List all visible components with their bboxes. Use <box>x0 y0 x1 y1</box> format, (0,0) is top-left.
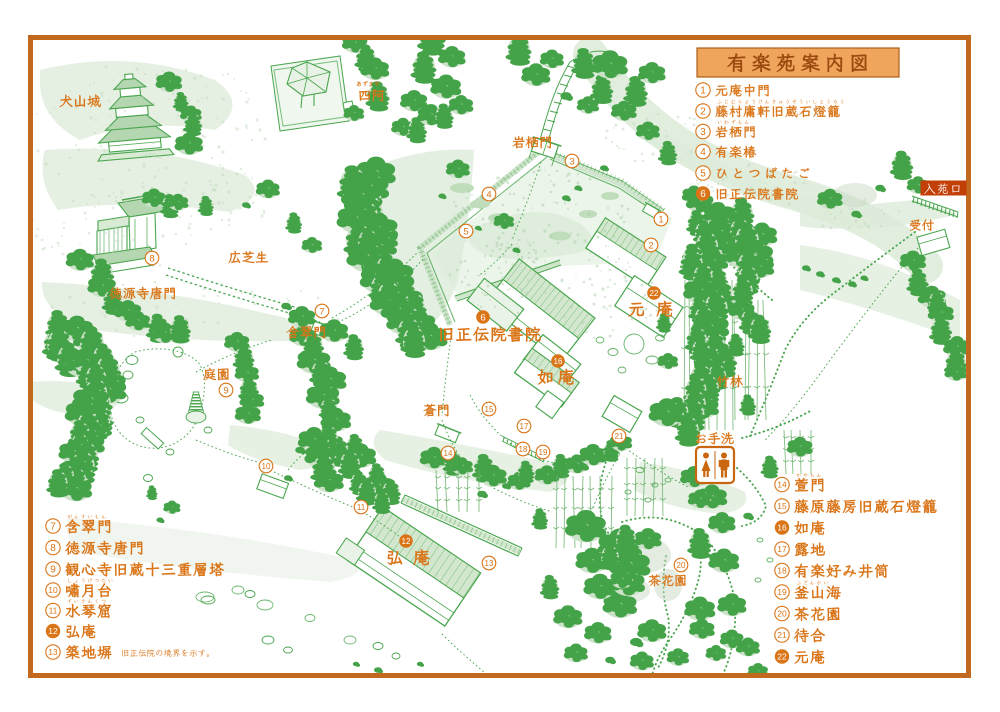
svg-text:22: 22 <box>777 652 787 662</box>
svg-text:17: 17 <box>520 422 529 431</box>
svg-text:16: 16 <box>554 357 563 366</box>
svg-text:15: 15 <box>777 501 787 511</box>
svg-text:12: 12 <box>48 626 58 636</box>
svg-text:10: 10 <box>262 462 271 471</box>
svg-text:4: 4 <box>486 189 491 200</box>
svg-text:15: 15 <box>485 405 494 414</box>
svg-text:8: 8 <box>149 253 154 264</box>
svg-text:5: 5 <box>463 226 468 237</box>
svg-text:2: 2 <box>700 107 706 118</box>
svg-text:14: 14 <box>444 449 453 458</box>
svg-text:7: 7 <box>50 522 56 533</box>
svg-text:7: 7 <box>319 306 324 317</box>
svg-text:3: 3 <box>700 127 706 138</box>
svg-text:14: 14 <box>777 480 787 490</box>
svg-text:5: 5 <box>700 169 706 180</box>
svg-text:11: 11 <box>49 606 58 616</box>
svg-text:17: 17 <box>777 544 787 554</box>
svg-text:6: 6 <box>480 312 485 323</box>
svg-text:12: 12 <box>402 537 411 546</box>
svg-text:9: 9 <box>50 565 56 576</box>
svg-text:19: 19 <box>777 587 787 597</box>
svg-text:6: 6 <box>700 189 706 200</box>
svg-text:16: 16 <box>777 523 787 533</box>
svg-text:2: 2 <box>648 240 653 251</box>
svg-text:1: 1 <box>700 86 706 97</box>
svg-text:8: 8 <box>50 543 56 554</box>
svg-text:22: 22 <box>650 289 659 298</box>
svg-text:18: 18 <box>519 445 528 454</box>
svg-text:9: 9 <box>223 385 228 396</box>
svg-text:3: 3 <box>569 156 574 167</box>
svg-text:20: 20 <box>777 609 787 619</box>
svg-text:21: 21 <box>615 432 624 441</box>
svg-text:10: 10 <box>48 585 58 595</box>
svg-text:11: 11 <box>357 503 366 512</box>
svg-text:13: 13 <box>485 559 494 568</box>
svg-text:19: 19 <box>539 448 548 457</box>
svg-text:18: 18 <box>777 566 787 576</box>
svg-text:21: 21 <box>777 630 787 640</box>
svg-text:1: 1 <box>658 214 663 225</box>
svg-text:20: 20 <box>677 561 686 570</box>
svg-text:13: 13 <box>48 647 58 657</box>
svg-text:4: 4 <box>700 147 706 158</box>
